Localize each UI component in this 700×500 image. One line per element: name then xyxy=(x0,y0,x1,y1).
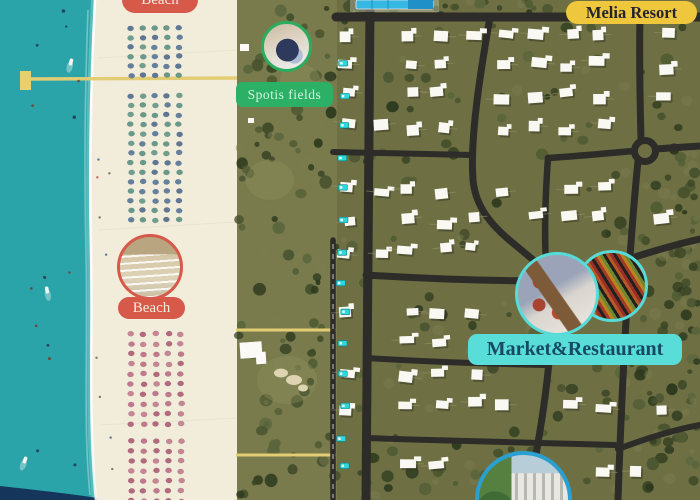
melia-resort-label[interactable]: Melia Resort xyxy=(566,1,697,24)
restaurant-photo-icon[interactable] xyxy=(515,252,599,336)
map-base xyxy=(0,0,700,500)
yellow-pier xyxy=(20,71,31,90)
beach-label-top[interactable]: Beach xyxy=(122,0,198,13)
sports-field-photo-icon[interactable] xyxy=(261,21,312,72)
sports-fields-label[interactable]: Spotis fields xyxy=(236,82,333,107)
beach-photo-pin-icon[interactable] xyxy=(117,234,183,300)
beach-label[interactable]: Beach xyxy=(118,297,185,319)
resort-pool xyxy=(350,0,439,12)
resort-map: Beach Spotis fields Melia Resort Beach M… xyxy=(0,0,700,500)
market-restaurant-label[interactable]: Market&Restaurant xyxy=(468,334,682,365)
roundabout xyxy=(635,141,656,162)
